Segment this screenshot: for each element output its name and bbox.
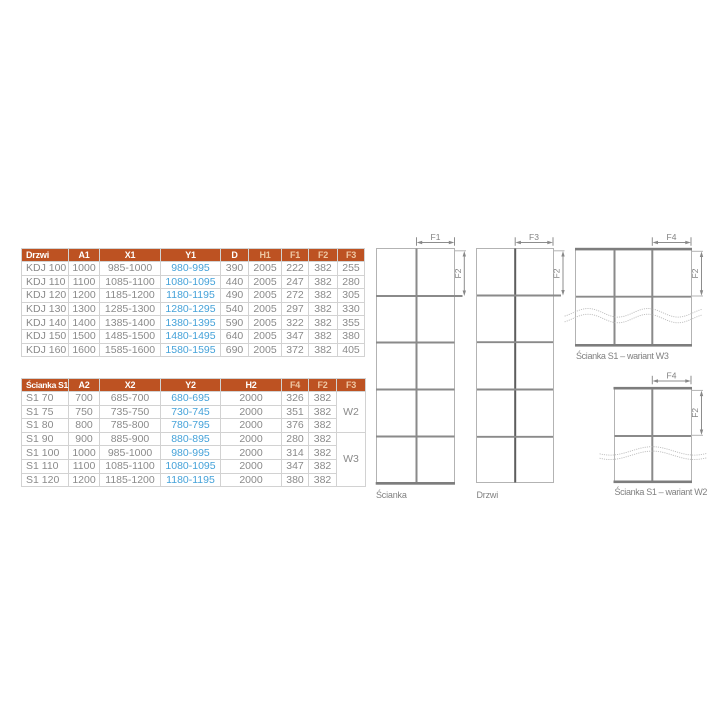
svg-text:F2: F2 [690,268,700,278]
svg-text:F2: F2 [552,268,562,278]
svg-text:Ścianka S1 – wariant W2: Ścianka S1 – wariant W2 [615,486,708,497]
svg-text:Ścianka S1 – wariant W3: Ścianka S1 – wariant W3 [576,350,669,361]
svg-text:F3: F3 [529,232,539,242]
svg-text:Ścianka: Ścianka [376,489,407,500]
svg-text:Drzwi: Drzwi [477,490,499,500]
svg-text:F4: F4 [667,232,677,242]
svg-text:F2: F2 [690,408,700,418]
svg-text:F4: F4 [667,371,677,381]
svg-text:F2: F2 [453,268,463,278]
svg-text:F1: F1 [431,232,441,242]
